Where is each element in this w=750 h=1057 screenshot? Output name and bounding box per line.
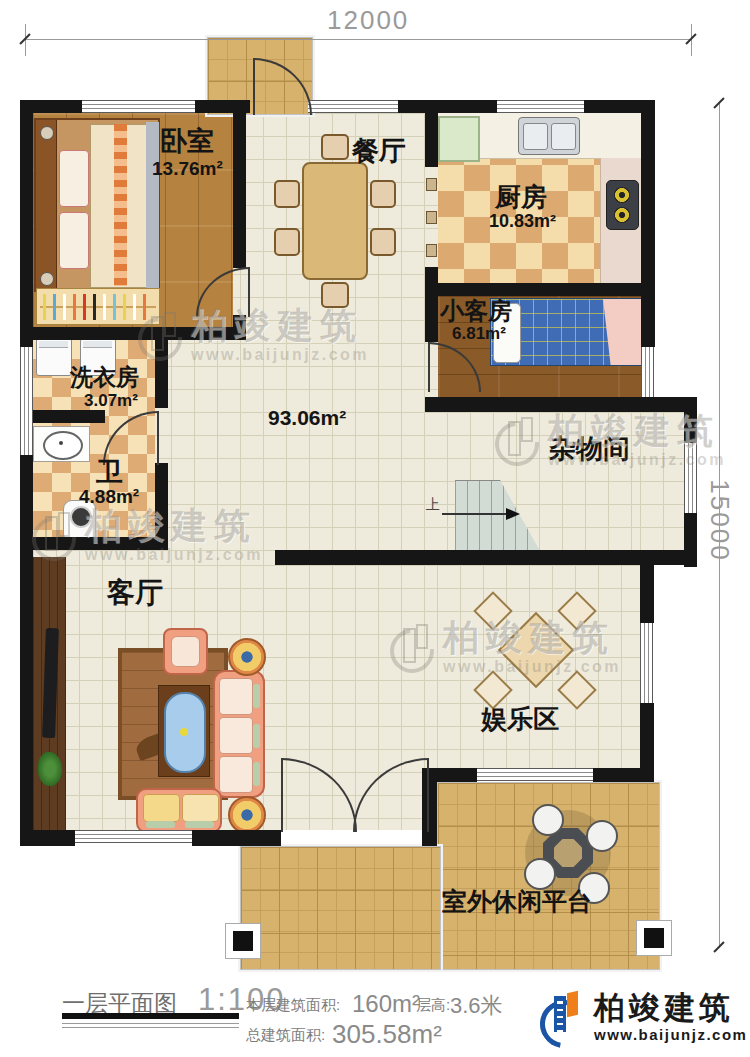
room-area-kitchen: 10.83m² [489,212,556,230]
room-area-bath: 4.88m² [79,487,139,506]
sofa-main [213,670,265,798]
window [641,347,655,397]
table-decor [180,728,188,736]
sofa-pillow [253,762,260,786]
sink-basin [551,123,576,150]
wall [425,283,655,296]
brand-logo-icon [540,992,586,1044]
dimension-right-line [719,103,720,948]
bedroom-wardrobe [36,288,160,325]
storey-height-label: 层高: [416,996,450,1015]
sofa-cushion [219,678,253,715]
column-core [644,928,664,948]
room-label-bath: 卫 [96,459,123,486]
sofa-pillow [253,684,260,708]
fridge [438,116,480,162]
window [640,623,654,703]
window [477,768,593,782]
dining-chair [370,180,396,208]
window [497,100,584,113]
sofa-cushion [182,794,219,822]
side-table-round [228,796,266,834]
room-label-kitchen: 厨房 [495,184,547,210]
wall [275,550,697,565]
window [308,100,398,113]
wall [233,113,246,268]
wall [33,410,105,423]
plant [38,752,62,786]
stairs-arrow-line [442,513,512,515]
dining-chair [321,134,349,160]
wall [398,100,497,113]
wall [425,830,437,846]
room-label-dining: 餐厅 [352,138,406,165]
wall [641,100,655,347]
floor-area-value: 160m² [352,990,420,1018]
sink-drain [59,441,63,445]
sofa-loveseat [136,788,222,833]
sofa-pillow [253,724,260,748]
bedroom-bed [34,118,160,292]
wall [593,768,654,782]
window [75,830,192,846]
stairs-up-label: 上 [426,496,440,514]
stove [606,180,639,230]
brand-logo: 柏竣建筑 www.baijunjz.com [540,992,747,1044]
kitchen-door-tick [426,244,437,257]
terrace-floor-lower [240,846,441,970]
bed-quilt-stripe [114,124,127,286]
wall [155,340,168,408]
wall [20,455,33,846]
room-label-living: 客厅 [107,579,163,607]
bed-blanket [146,122,159,288]
terrace-chair [532,804,564,836]
dining-table [302,162,368,280]
brand-name: 柏竣建筑 [594,992,747,1023]
room-label-terrace: 室外休闲平台 [442,889,592,914]
floor-area-label: 本层建筑面积: [246,996,340,1015]
terrace-chair [524,858,556,890]
bath-sink [33,426,90,462]
guest-bed-blanket [603,299,641,365]
sink-basin [523,123,548,150]
wall [20,830,75,846]
sofa-cushion [219,756,253,793]
dimension-top-line [25,39,692,40]
bed-knob [40,126,54,140]
bed-pillow [59,150,89,207]
brand-website: www.baijunjz.com [594,1027,747,1042]
wall [425,397,697,412]
total-area-value: 305.58m² [332,1019,442,1050]
title-underline-thick [62,1013,239,1019]
window [684,443,697,513]
window [82,100,195,113]
guest-bed [490,298,642,366]
terrace-column [636,920,672,956]
room-label-bedroom: 卧室 [160,128,214,155]
armchair [163,628,208,675]
sofa-cushion [143,794,180,822]
wall [195,100,250,113]
stairs-arrow-head [506,508,520,520]
burner [614,187,630,203]
room-area-laundry: 3.07m² [84,392,138,409]
machine-panel [83,341,112,348]
storey-height-value: 3.6米 [450,991,503,1021]
dining-chair [274,228,300,256]
kitchen-sink [518,117,580,155]
washing-machine [36,338,72,376]
wall [192,830,281,846]
floorplan-sheet: 12000 15000 [0,0,750,1057]
terrace-column [225,923,261,959]
wall [33,327,246,340]
title-underline-thin [62,1023,239,1024]
room-area-guest: 6.81m² [452,325,506,342]
column-core [233,931,253,951]
window [20,347,33,455]
room-area-hall: 93.06m² [268,407,346,428]
dimension-top-value: 12000 [327,5,409,36]
wall [20,100,33,347]
wall [684,412,697,443]
burner [614,207,630,223]
terrace-chair [586,820,618,852]
dining-chair [370,228,396,256]
machine-panel [39,341,68,348]
bed-pillow [59,212,89,269]
room-label-guest: 小客房 [440,299,512,323]
sofa-pillow [146,821,175,828]
dining-chair [274,180,300,208]
title-underline-thin [62,1027,239,1028]
sofa-pillow [185,821,214,828]
armchair-cushion [171,636,200,667]
kitchen-door-tick [426,178,437,191]
room-area-bedroom: 13.76m² [152,159,223,178]
toilet-lid [70,506,92,528]
terrace-table-hole [554,839,582,867]
side-table-round [228,638,266,676]
wall [640,565,654,623]
wall [33,537,168,550]
dining-chair [321,282,349,308]
wall [425,113,438,167]
room-label-entertainment: 娱乐区 [481,706,559,732]
bed-headboard [36,120,57,290]
sink-bowl [43,431,83,460]
wardrobe-hangers [43,294,155,320]
sofa-cushion [219,717,253,754]
wall [425,296,438,342]
room-label-laundry: 洗衣房 [70,366,139,389]
coffee-table [158,685,210,777]
storage-floor [640,412,684,550]
bed-knob [40,272,54,286]
total-area-label: 总建筑面积: [246,1026,325,1045]
room-label-storage: 杂物间 [549,436,630,463]
wall [425,267,438,283]
kitchen-door-tick [426,211,437,224]
